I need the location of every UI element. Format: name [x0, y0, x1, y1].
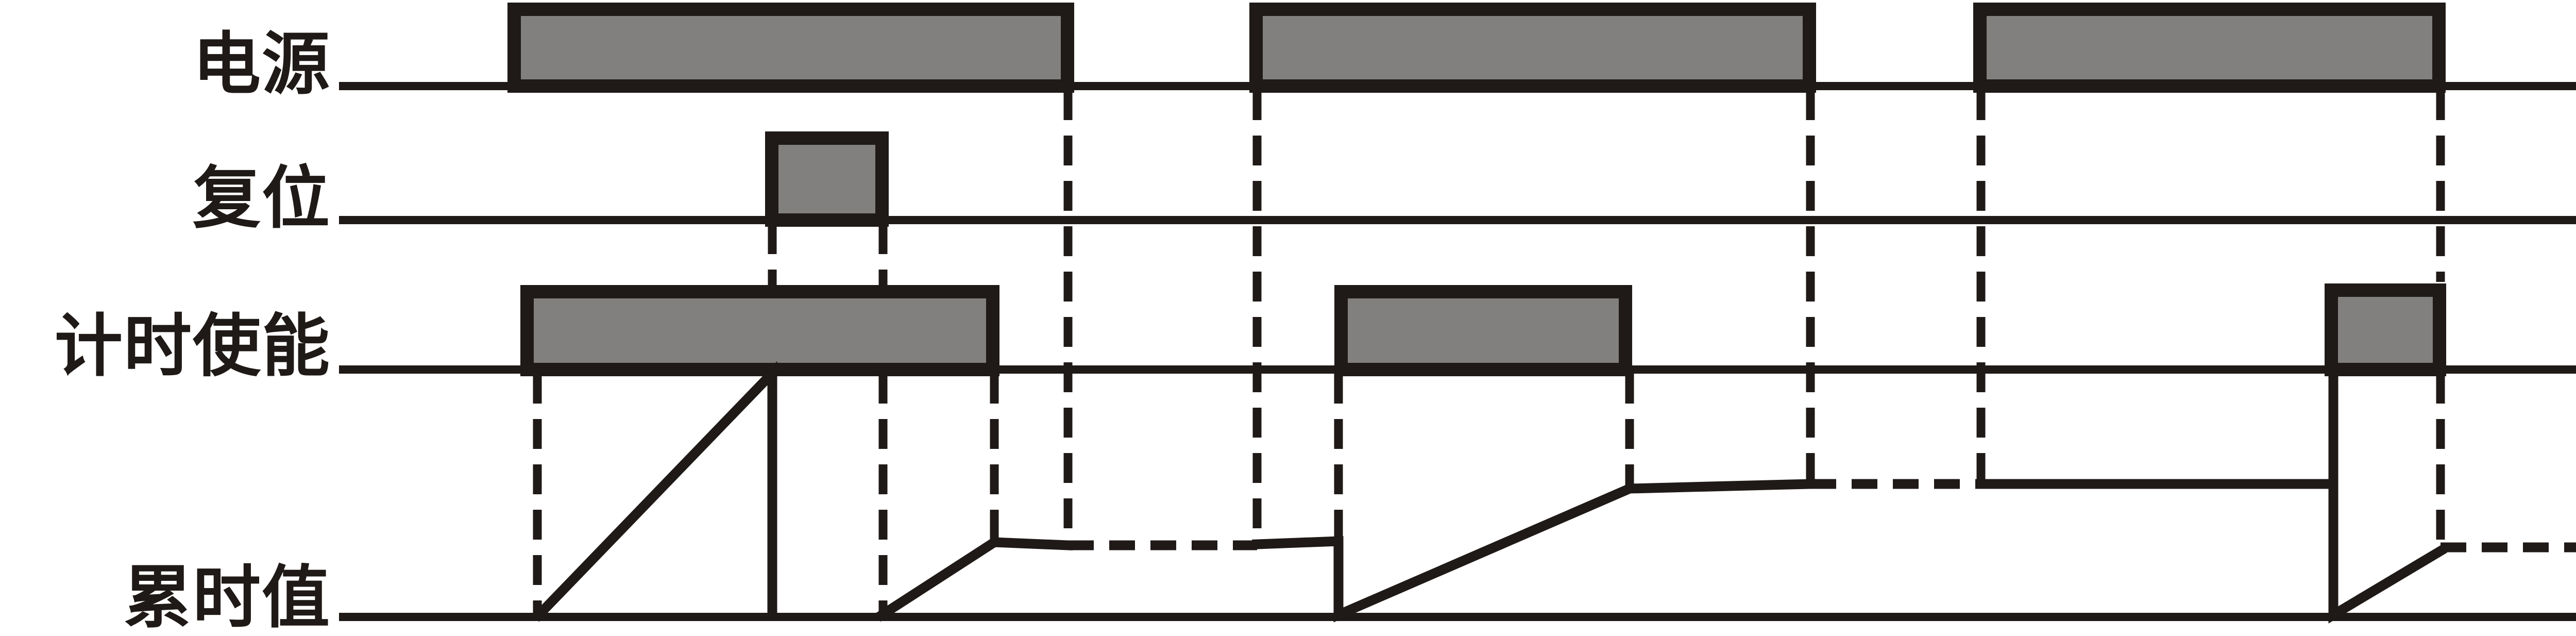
enable-pulse-1 — [527, 292, 993, 370]
signal-label-accumulated-value: 累时值 — [0, 564, 331, 632]
value-ramp2-plateau1 — [882, 542, 1068, 615]
signal-label-reset: 复位 — [0, 164, 331, 232]
enable-pulse-2 — [1341, 292, 1625, 370]
signal-label-power: 电源 — [0, 30, 331, 98]
power-pulse-2 — [1256, 9, 1809, 86]
power-pulse-1 — [514, 9, 1067, 86]
reset-pulse-1 — [772, 138, 882, 220]
enable-pulse-3 — [2331, 290, 2439, 370]
value-drop3-ramp4 — [2333, 374, 2441, 615]
value-ramp1-and-reset-drop — [539, 373, 772, 615]
timing-diagram: 电源 复位 计时使能 累时值 — [0, 0, 2576, 636]
value-plateau1b-drop2-ramp3 — [1257, 484, 1810, 615]
signal-label-timer-enable: 计时使能 — [0, 312, 331, 380]
power-pulse-3 — [1980, 9, 2439, 86]
timing-diagram-canvas — [0, 0, 2576, 636]
